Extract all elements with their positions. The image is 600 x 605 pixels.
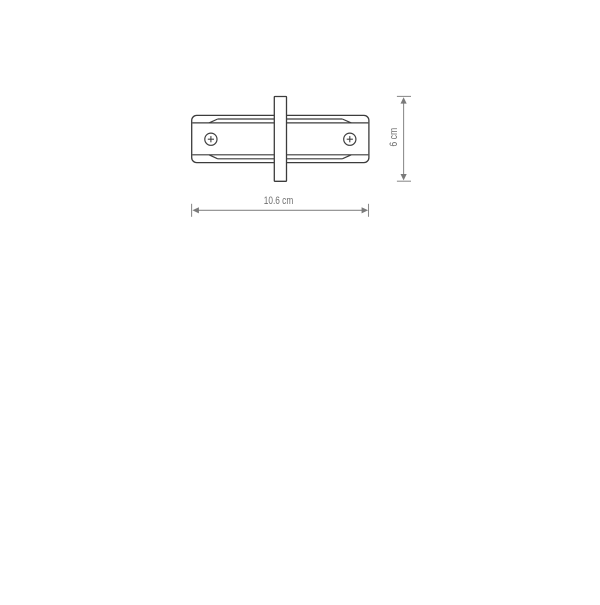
svg-text:10.6 cm: 10.6 cm: [264, 195, 293, 207]
svg-text:6 cm: 6 cm: [388, 128, 400, 147]
